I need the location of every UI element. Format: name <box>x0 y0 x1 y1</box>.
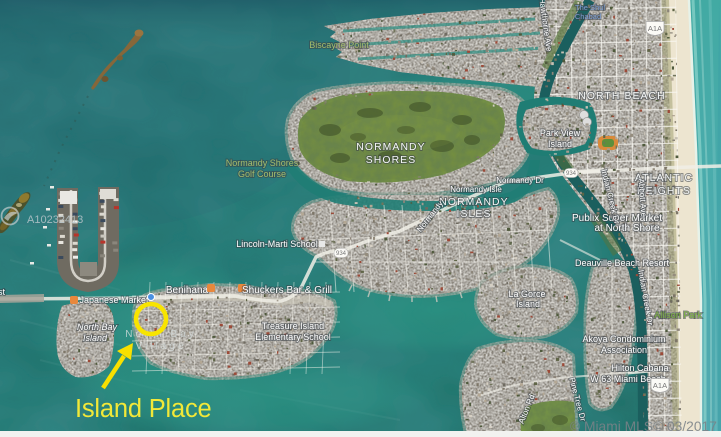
svg-text:La Gorce: La Gorce <box>508 289 545 299</box>
svg-text:The Shul: The Shul <box>575 3 605 12</box>
svg-text:A1A: A1A <box>653 381 667 390</box>
svg-text:Golf Course: Golf Course <box>238 169 286 179</box>
svg-text:Park View: Park View <box>540 128 581 138</box>
svg-text:Elementary School: Elementary School <box>255 332 331 342</box>
svg-text:Island: Island <box>548 139 572 149</box>
svg-text:Normandy Dr: Normandy Dr <box>496 176 544 185</box>
svg-text:Akoya Condominium: Akoya Condominium <box>582 334 665 344</box>
svg-text:Village: Village <box>136 341 187 352</box>
svg-text:A10232413: A10232413 <box>27 214 83 226</box>
svg-text:NORMANDY: NORMANDY <box>439 197 508 208</box>
svg-text:Deauville Beach Resort: Deauville Beach Resort <box>575 258 670 268</box>
svg-text:934: 934 <box>566 171 577 177</box>
svg-text:Lincoln-Marti School: Lincoln-Marti School <box>236 239 318 249</box>
svg-text:Biscayne Point: Biscayne Point <box>309 40 369 50</box>
svg-text:NORMANDY: NORMANDY <box>356 142 425 153</box>
svg-text:st: st <box>0 287 6 297</box>
svg-text:Treasure Island: Treasure Island <box>262 321 324 331</box>
svg-text:Association: Association <box>601 345 647 355</box>
svg-text:Normandy Shores: Normandy Shores <box>226 158 299 168</box>
svg-text:A1A: A1A <box>648 24 662 33</box>
svg-text:Shuckers Bar & Grill: Shuckers Bar & Grill <box>242 285 332 296</box>
svg-text:934: 934 <box>336 251 347 257</box>
svg-text:SHORES: SHORES <box>366 155 416 166</box>
svg-text:Island: Island <box>516 299 540 309</box>
svg-text:Benihana: Benihana <box>166 285 209 296</box>
svg-text:NORTH BEACH: NORTH BEACH <box>578 91 666 102</box>
svg-text:Island Place: Island Place <box>75 395 212 423</box>
svg-text:Japanese Market: Japanese Market <box>79 295 149 305</box>
svg-text:ISLES: ISLES <box>457 209 492 220</box>
svg-text:Normandy Isle: Normandy Isle <box>450 185 502 194</box>
svg-text:Allison Park: Allison Park <box>654 310 702 320</box>
svg-text:Chabad: Chabad <box>575 12 601 21</box>
svg-text:North Bay: North Bay <box>77 322 118 332</box>
svg-text:Island: Island <box>83 333 108 343</box>
svg-text:Hilton Cabana: Hilton Cabana <box>611 363 668 373</box>
svg-text:at North Shore: at North Shore <box>594 223 659 234</box>
